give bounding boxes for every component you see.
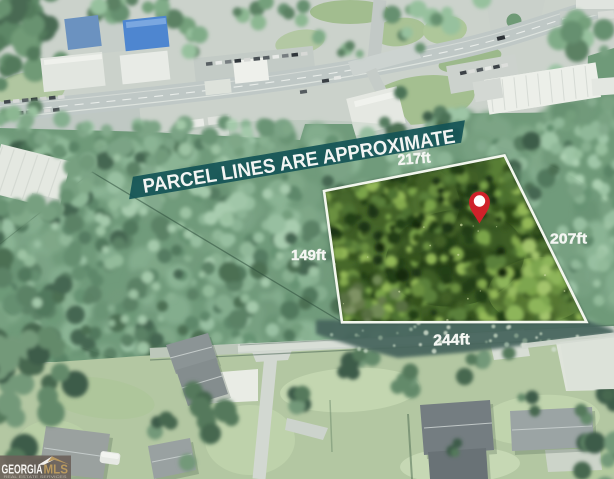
svg-text:244ft: 244ft <box>433 331 470 349</box>
svg-text:REAL ESTATE SERVICES: REAL ESTATE SERVICES <box>4 475 68 479</box>
svg-text:149ft: 149ft <box>291 247 326 264</box>
svg-text:207ft: 207ft <box>550 231 587 248</box>
svg-text:217ft: 217ft <box>397 149 431 169</box>
